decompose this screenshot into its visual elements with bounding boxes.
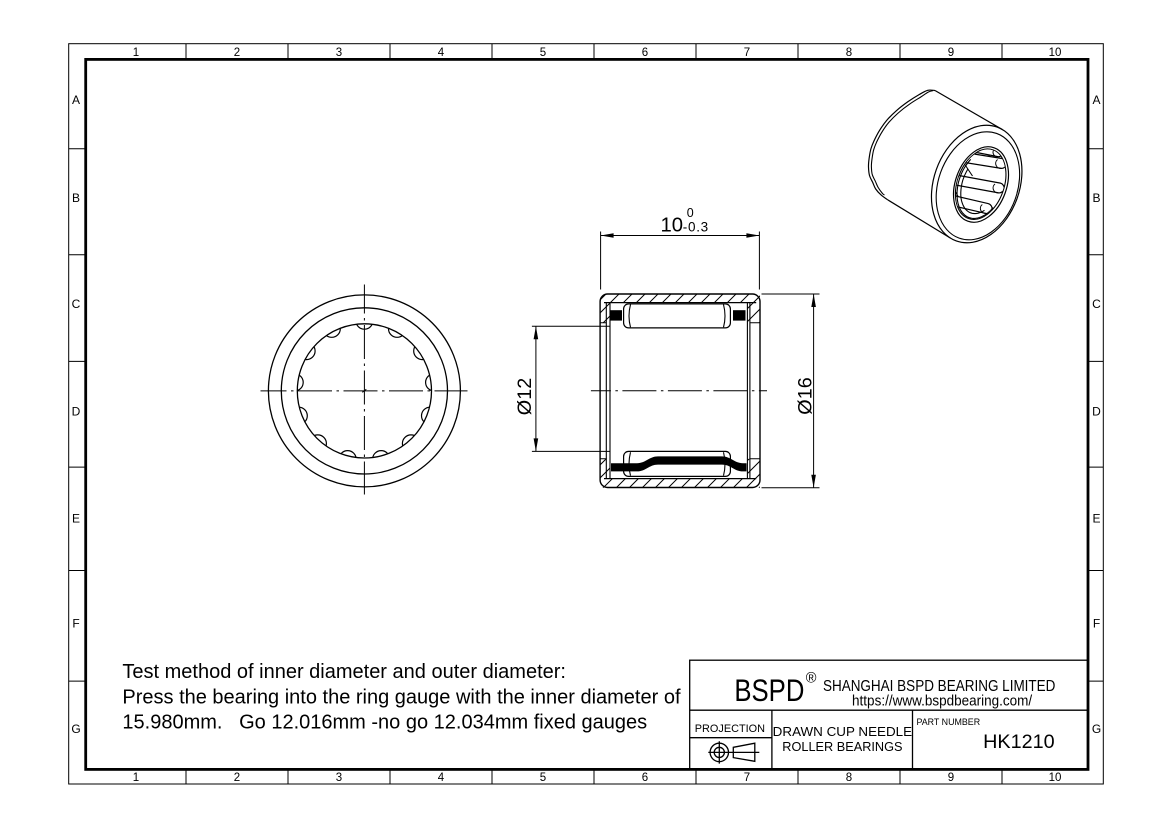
svg-text:DRAWN CUP NEEDLE: DRAWN CUP NEEDLE xyxy=(773,724,913,739)
svg-text:Test method of inner diameter: Test method of inner diameter and outer … xyxy=(122,661,566,683)
svg-text:1: 1 xyxy=(133,47,139,59)
svg-text:HK1210: HK1210 xyxy=(983,732,1055,753)
svg-text:4: 4 xyxy=(438,47,445,59)
svg-text:D: D xyxy=(72,405,81,419)
svg-text:10: 10 xyxy=(1049,772,1062,784)
svg-text:2: 2 xyxy=(234,47,240,59)
svg-text:E: E xyxy=(72,511,80,525)
svg-text:7: 7 xyxy=(744,47,750,59)
svg-text:10: 10 xyxy=(661,215,684,237)
svg-text:F: F xyxy=(72,616,79,630)
svg-text:3: 3 xyxy=(336,772,342,784)
svg-text:Ø16: Ø16 xyxy=(795,377,817,414)
svg-text:G: G xyxy=(71,722,80,736)
svg-text:A: A xyxy=(72,93,80,107)
svg-text:9: 9 xyxy=(948,47,954,59)
svg-text:D: D xyxy=(1092,405,1101,419)
svg-text:C: C xyxy=(72,297,81,311)
svg-text:3: 3 xyxy=(336,47,342,59)
svg-text:B: B xyxy=(72,191,80,205)
svg-text:Press the bearing into the rin: Press the bearing into the ring gauge wi… xyxy=(122,686,681,708)
svg-text:E: E xyxy=(1092,511,1100,525)
svg-text:BSPD: BSPD xyxy=(734,672,804,708)
svg-text:-0.3: -0.3 xyxy=(683,220,709,235)
svg-text:PROJECTION: PROJECTION xyxy=(695,723,765,735)
svg-text:4: 4 xyxy=(438,772,445,784)
svg-text:8: 8 xyxy=(846,47,852,59)
svg-text:9: 9 xyxy=(948,772,954,784)
svg-text:10: 10 xyxy=(1049,47,1062,59)
svg-text:A: A xyxy=(1092,93,1100,107)
svg-text:PART NUMBER: PART NUMBER xyxy=(917,717,981,727)
svg-text:6: 6 xyxy=(642,47,648,59)
svg-text:5: 5 xyxy=(540,772,546,784)
svg-text:G: G xyxy=(1092,722,1101,736)
svg-text:https://www.bspdbearing.com/: https://www.bspdbearing.com/ xyxy=(852,693,1033,710)
svg-text:B: B xyxy=(1092,191,1100,205)
svg-text:5: 5 xyxy=(540,47,546,59)
svg-text:ROLLER BEARINGS: ROLLER BEARINGS xyxy=(782,739,902,754)
svg-text:F: F xyxy=(1093,616,1100,630)
svg-text:C: C xyxy=(1092,297,1101,311)
svg-text:1: 1 xyxy=(133,772,139,784)
svg-text:2: 2 xyxy=(234,772,240,784)
svg-text:7: 7 xyxy=(744,772,750,784)
svg-text:6: 6 xyxy=(642,772,648,784)
svg-text:8: 8 xyxy=(846,772,852,784)
svg-text:®: ® xyxy=(806,670,817,686)
svg-text:Ø12: Ø12 xyxy=(514,378,536,415)
svg-text:0: 0 xyxy=(687,206,694,220)
svg-text:15.980mm. Go 12.016mm -no go: 15.980mm. Go 12.016mm -no go 12.034mm fi… xyxy=(122,712,647,734)
